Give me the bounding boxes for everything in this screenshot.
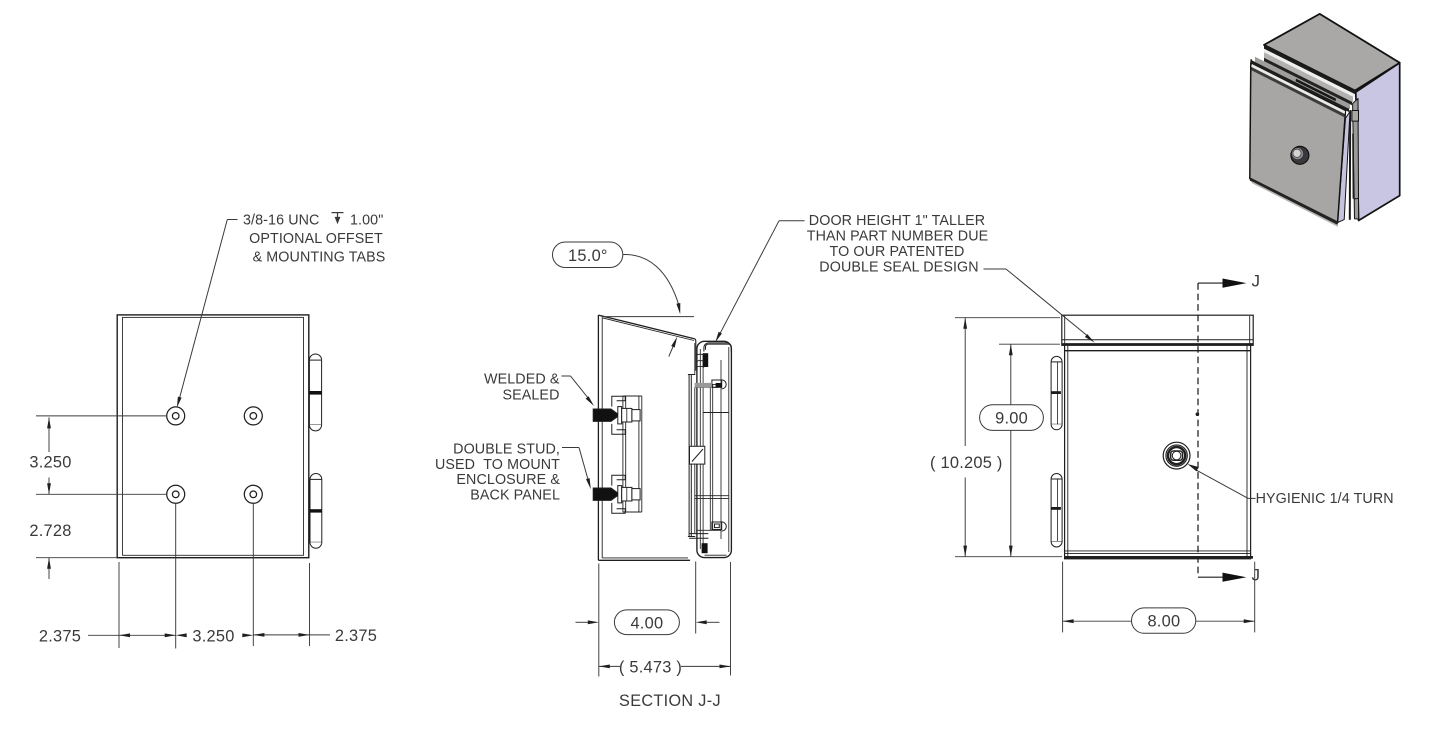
svg-text:WELDED &: WELDED & [484, 372, 560, 388]
svg-text:1.00": 1.00" [350, 212, 383, 228]
svg-text:THAN PART NUMBER DUE: THAN PART NUMBER DUE [807, 229, 989, 245]
svg-text:DOOR HEIGHT 1" TALLER: DOOR HEIGHT 1" TALLER [809, 213, 985, 229]
svg-text:& MOUNTING TABS: & MOUNTING TABS [253, 249, 386, 265]
svg-text:( 5.473 ): ( 5.473 ) [619, 658, 682, 676]
svg-text:3.250: 3.250 [192, 628, 234, 646]
svg-text:9.00: 9.00 [995, 410, 1028, 428]
svg-text:2.728: 2.728 [29, 522, 71, 540]
svg-text:( 10.205 ): ( 10.205 ) [930, 454, 1003, 472]
svg-text:2.375: 2.375 [335, 627, 377, 645]
svg-text:DOUBLE STUD,: DOUBLE STUD, [453, 441, 560, 457]
svg-text:3.250: 3.250 [29, 454, 71, 472]
svg-text:HYGIENIC 1/4 TURN: HYGIENIC 1/4 TURN [1256, 491, 1394, 507]
svg-text:OPTIONAL OFFSET: OPTIONAL OFFSET [249, 231, 383, 247]
svg-text:SECTION J-J: SECTION J-J [619, 692, 721, 710]
svg-text:J: J [1252, 566, 1261, 585]
svg-text:2.375: 2.375 [39, 628, 81, 646]
svg-text:USED TO MOUNT: USED TO MOUNT [435, 457, 560, 473]
svg-text:TO OUR PATENTED: TO OUR PATENTED [830, 244, 965, 260]
svg-text:SEALED: SEALED [502, 388, 559, 404]
svg-text:ENCLOSURE &: ENCLOSURE & [456, 472, 560, 488]
svg-text:15.0°: 15.0° [568, 247, 608, 265]
svg-text:J: J [1252, 272, 1261, 291]
svg-text:DOUBLE SEAL DESIGN: DOUBLE SEAL DESIGN [819, 259, 978, 275]
svg-text:4.00: 4.00 [630, 614, 663, 632]
svg-text:8.00: 8.00 [1147, 613, 1180, 631]
svg-text:3/8-16 UNC: 3/8-16 UNC [243, 212, 320, 228]
svg-text:BACK PANEL: BACK PANEL [470, 488, 560, 504]
